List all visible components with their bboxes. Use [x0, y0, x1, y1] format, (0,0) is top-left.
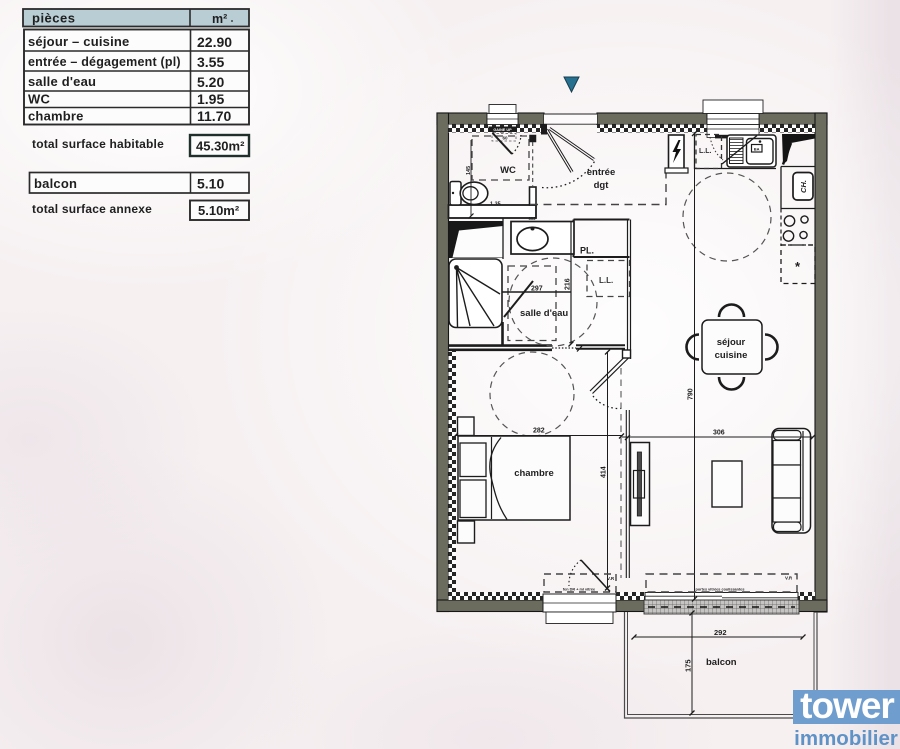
svg-text:1.95: 1.95 — [197, 91, 224, 107]
svg-text:11.70: 11.70 — [197, 108, 231, 124]
svg-text:282: 282 — [533, 428, 545, 435]
svg-text:cuisine: cuisine — [715, 350, 748, 361]
svg-text:entrée: entrée — [587, 167, 616, 178]
svg-text:PL.: PL. — [580, 246, 594, 256]
svg-text:WC: WC — [500, 165, 516, 176]
svg-text:216: 216 — [565, 278, 572, 290]
svg-text:V.R: V.R — [607, 576, 615, 581]
svg-text:dgt: dgt — [594, 180, 610, 191]
svg-text:145: 145 — [466, 166, 472, 175]
svg-text:immobilier: immobilier — [794, 727, 898, 749]
svg-text:GAINE UP: GAINE UP — [493, 128, 512, 132]
svg-text:m²: m² — [212, 12, 227, 26]
svg-text:CH.: CH. — [799, 180, 808, 193]
svg-text:603: 603 — [529, 216, 537, 221]
svg-text:414: 414 — [601, 466, 608, 478]
svg-text:L.L.: L.L. — [599, 276, 613, 285]
svg-text:séjour – cuisine: séjour – cuisine — [28, 34, 129, 49]
svg-text:tower: tower — [800, 685, 894, 726]
svg-text:salle d'eau: salle d'eau — [28, 74, 96, 89]
svg-text:WC: WC — [28, 92, 50, 107]
svg-text:V.R: V.R — [785, 576, 793, 581]
svg-text:45.30m²: 45.30m² — [196, 139, 245, 154]
svg-text:790: 790 — [688, 388, 695, 400]
svg-text:3.55: 3.55 — [197, 54, 224, 70]
svg-text:balcon: balcon — [34, 176, 77, 191]
svg-text:chambre: chambre — [28, 109, 84, 124]
svg-text:portes vitrées coulissantes: portes vitrées coulissantes — [696, 588, 745, 592]
svg-text:5.20: 5.20 — [197, 74, 224, 90]
svg-text:salle d'eau: salle d'eau — [520, 308, 568, 319]
svg-text:L.L.: L.L. — [699, 148, 711, 155]
svg-text:balcon: balcon — [706, 657, 737, 668]
svg-text:5.10: 5.10 — [197, 176, 224, 192]
svg-text:séjour: séjour — [717, 337, 746, 348]
svg-text:5.10m²: 5.10m² — [198, 203, 240, 218]
svg-text:total surface annexe: total surface annexe — [32, 202, 152, 216]
svg-text:175: 175 — [684, 659, 693, 672]
svg-text:297: 297 — [531, 286, 543, 293]
svg-text:pièces: pièces — [32, 11, 75, 26]
svg-text:BA: BA — [754, 147, 760, 152]
svg-text:entrée – dégagement (pl): entrée – dégagement (pl) — [28, 55, 181, 69]
svg-text:1.35: 1.35 — [490, 202, 501, 208]
svg-text:fen DR + ml vitrée: fen DR + ml vitrée — [563, 588, 595, 592]
svg-text:chambre: chambre — [514, 468, 554, 479]
svg-text:306: 306 — [713, 430, 725, 437]
svg-text:292: 292 — [714, 628, 727, 637]
svg-text:*: * — [795, 259, 801, 274]
svg-text:60: 60 — [502, 136, 508, 141]
svg-text:total surface habitable: total surface habitable — [32, 137, 164, 151]
svg-text:22.90: 22.90 — [197, 34, 232, 50]
